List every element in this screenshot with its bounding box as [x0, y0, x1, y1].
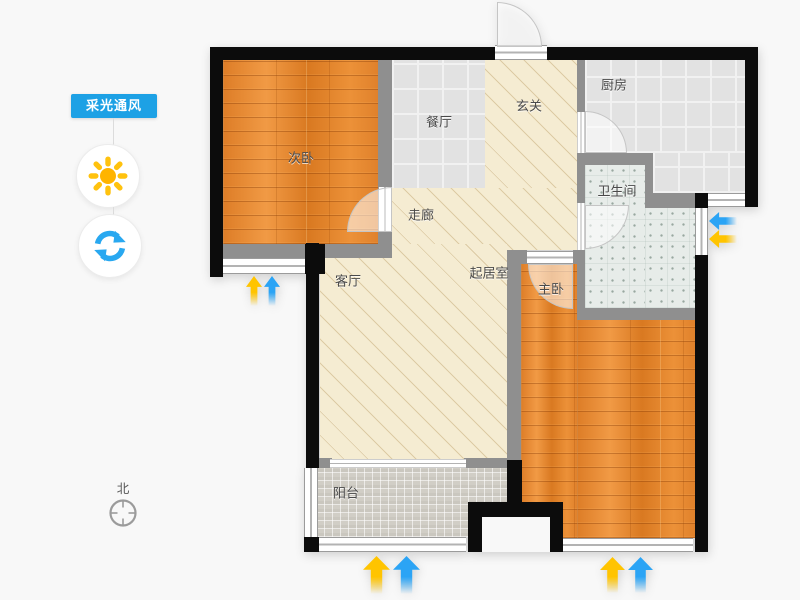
wall — [645, 165, 653, 195]
room-label-dining: 餐厅 — [426, 112, 452, 131]
wall — [464, 458, 508, 468]
wall — [304, 537, 319, 552]
lighting-arrow-up-icon — [600, 557, 625, 593]
window-secondary-bedroom — [223, 258, 305, 274]
wall — [468, 517, 482, 552]
floorplan: 次卧 餐厅 玄关 厨房 卫生间 走廊 客厅 起居室 主卧 阳台 — [0, 0, 800, 600]
wall — [306, 243, 319, 468]
room-label-secondary-bedroom: 次卧 — [288, 148, 314, 167]
window-balcony-side — [304, 468, 318, 538]
door-bathroom — [577, 203, 585, 250]
lighting-arrow-up-icon — [246, 276, 262, 306]
room-label-master-bedroom: 主卧 — [538, 279, 564, 298]
wall — [695, 255, 708, 552]
window-bathroom — [695, 208, 708, 255]
room-label-living: 客厅 — [335, 271, 361, 290]
airflow-arrow-left-icon — [709, 212, 737, 230]
wall — [745, 47, 758, 207]
wall — [577, 308, 695, 320]
window-master-bedroom — [563, 538, 693, 552]
room-floor-hall — [485, 60, 577, 190]
wall — [547, 47, 758, 60]
room-floor-bathroom — [645, 208, 695, 308]
airflow-arrow-up-icon — [393, 556, 420, 594]
room-label-balcony: 阳台 — [333, 483, 359, 502]
lighting-arrow-left-icon — [709, 230, 737, 248]
wall — [550, 517, 563, 552]
wall — [210, 47, 495, 60]
wall — [378, 60, 392, 187]
room-floor-kitchen — [653, 153, 745, 193]
wall — [507, 460, 522, 502]
room-label-sitting: 起居室 — [469, 263, 508, 282]
room-label-corridor: 走廊 — [408, 205, 434, 224]
room-label-kitchen: 厨房 — [601, 75, 627, 94]
door-entry — [495, 45, 547, 60]
wall — [573, 250, 585, 264]
door-master-bedroom — [527, 251, 573, 264]
airflow-arrow-up-icon — [628, 557, 653, 593]
room-label-bathroom: 卫生间 — [597, 181, 636, 200]
door-kitchen — [577, 112, 585, 153]
sliding-door-balcony — [330, 459, 466, 468]
floorplan-viewer: 采光通风 — [0, 0, 800, 600]
exterior-niche — [482, 517, 550, 552]
window-kitchen — [708, 193, 745, 207]
window-balcony — [318, 537, 466, 552]
wall — [507, 250, 521, 462]
wall — [577, 153, 653, 165]
lighting-arrow-up-icon — [363, 556, 390, 594]
wall — [577, 165, 585, 203]
wall — [695, 193, 708, 208]
wall — [210, 47, 223, 277]
airflow-arrow-up-icon — [264, 276, 280, 306]
wall — [645, 193, 695, 208]
room-label-hall: 玄关 — [516, 96, 542, 115]
door-arc-entry — [497, 2, 542, 47]
room-floor-master-bedroom — [577, 320, 695, 538]
wall — [468, 502, 563, 517]
wall — [577, 60, 585, 112]
